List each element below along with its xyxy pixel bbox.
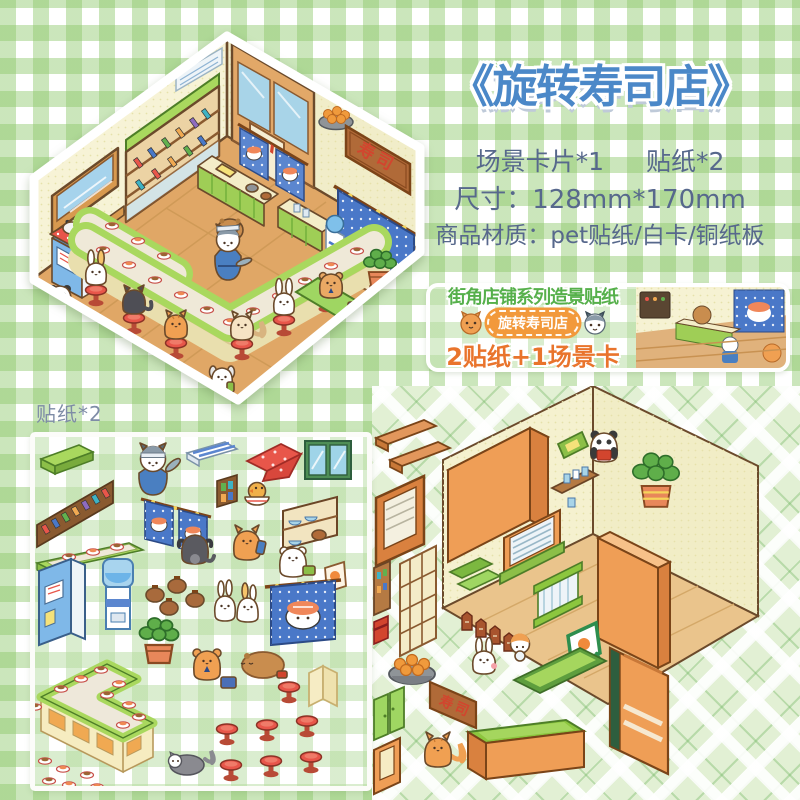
scene-card-illustration: 寿司 xyxy=(372,386,800,800)
sticker-black-dog xyxy=(179,535,214,564)
sticker-orange-cat-2 xyxy=(425,732,464,767)
sticker-sushi-plates xyxy=(39,758,104,786)
sticker-conveyor-counter xyxy=(35,664,153,772)
sticker-duck-bowl xyxy=(245,483,269,506)
sticker-mini-shelf xyxy=(217,475,237,507)
sticker-window xyxy=(305,441,351,479)
sticker-lattice-screen xyxy=(400,546,436,656)
sticker-white-bear xyxy=(280,547,315,577)
sticker-drinks-shelf xyxy=(37,481,113,547)
sticker-rabbits xyxy=(215,580,258,622)
sticker-window-frame xyxy=(376,476,424,566)
banner-text-block: 街角店铺系列造景贴纸 旋转寿司店 2贴纸+1场景卡 xyxy=(430,287,636,368)
sticker-capybara xyxy=(241,652,287,678)
sticker-red-cloth xyxy=(247,444,301,481)
sticker-sheet-label: 贴纸*2 xyxy=(36,398,103,427)
sticker-green-doors xyxy=(374,687,404,740)
sushi-shop-illustration: 寿司 xyxy=(26,28,430,410)
banner-photo xyxy=(636,287,786,368)
contents-line: 场景卡片*1贴纸*2 xyxy=(400,142,800,178)
material-line: 商品材质：pet贴纸/白卡/铜纸板 xyxy=(400,216,800,250)
series-banner: 街角店铺系列造景贴纸 旋转寿司店 2贴纸+1场景卡 xyxy=(426,283,790,372)
size-line: 尺寸：128mm*170mm xyxy=(400,179,800,216)
sticker-teapots xyxy=(146,576,204,615)
sticker-shelf-boards xyxy=(376,420,450,473)
sticker-sushi-banner xyxy=(265,580,341,645)
orange-cat-character xyxy=(165,310,188,339)
bundle-line: 2贴纸+1场景卡 xyxy=(446,337,620,372)
sticker-orange-cat xyxy=(234,525,266,560)
sticker-gift xyxy=(374,616,388,644)
contents-stickers: 贴纸*2 xyxy=(646,147,724,176)
sticker-long-box xyxy=(468,720,584,779)
contents-card: 场景卡片*1 xyxy=(476,147,604,176)
sticker-bowls-cabinet xyxy=(283,497,337,549)
sticker-stool-grid xyxy=(217,716,322,781)
sticker-plant xyxy=(140,618,179,663)
sticker-small-frame xyxy=(374,738,400,794)
sticker-folded-card xyxy=(309,666,337,706)
sticker-sheet-1 xyxy=(30,432,372,791)
cat-icon xyxy=(458,310,484,336)
sticker-vending-machine xyxy=(39,559,85,645)
husky-icon xyxy=(582,310,608,336)
sticker-striped-towel xyxy=(187,442,237,466)
sticker-gray-cat xyxy=(169,751,214,775)
sticker-panda xyxy=(590,431,618,463)
sticker-sushi-sign: 寿司 xyxy=(430,682,476,728)
sticker-bear-briefcase xyxy=(193,649,236,688)
sticker-green-shelf-board xyxy=(41,445,93,474)
sticker-water-cooler xyxy=(103,559,133,629)
shop-badge: 旋转寿司店 xyxy=(487,310,579,336)
sticker-mini-cabinet xyxy=(374,561,390,615)
sticker-mandarin-bowl xyxy=(389,655,435,685)
sticker-husky-chef xyxy=(139,443,182,495)
sticker-stool xyxy=(279,682,300,703)
product-title: 《旋转寿司店》 xyxy=(408,50,792,115)
series-title: 街角店铺系列造景贴纸 xyxy=(448,283,618,309)
